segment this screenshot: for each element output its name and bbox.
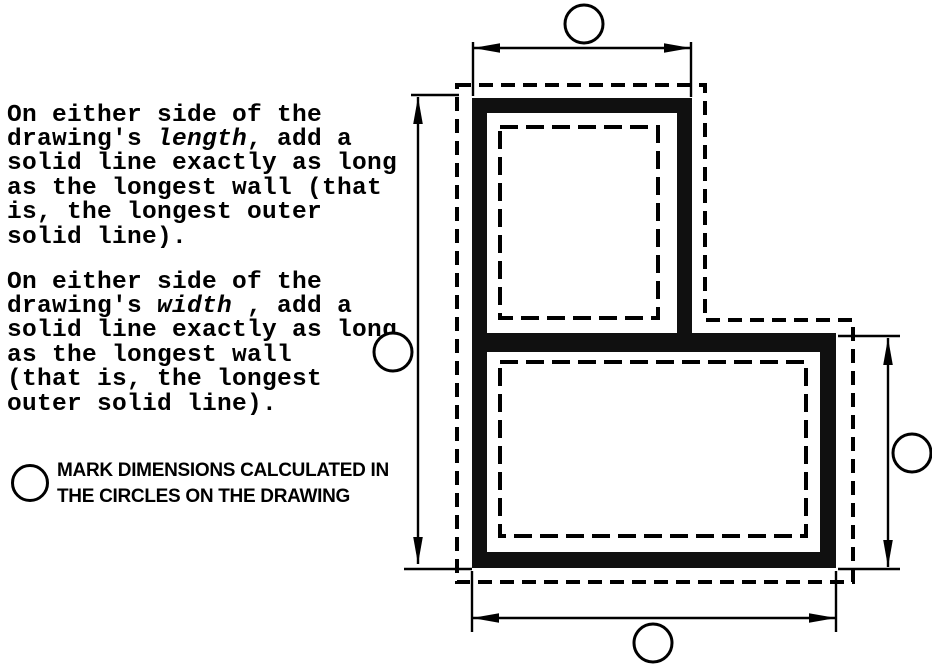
upper-room-inner-dashed: [500, 127, 658, 318]
left-dimension-arrow-top: [413, 97, 423, 124]
right-dimension-arrow-bottom: [883, 540, 893, 567]
bottom-dimension-arrow-right: [809, 613, 836, 623]
left-dimension: [404, 95, 472, 569]
bottom-dimension-circle: [634, 624, 672, 662]
bottom-dimension-arrow-left: [472, 613, 499, 623]
left-dimension-arrow-bottom: [413, 537, 423, 564]
top-dimension-arrow-left: [473, 43, 500, 53]
top-dimension-circle: [565, 5, 603, 43]
floor-plan-walls: [472, 98, 836, 568]
right-dimension-arrow-top: [883, 338, 893, 365]
worksheet-page: On either side of the drawing's length, …: [0, 0, 932, 667]
floor-plan-diagram: [0, 0, 932, 667]
right-dimension: [838, 336, 900, 569]
lower-room-inner-dashed: [500, 362, 806, 536]
top-dimension: [473, 42, 691, 97]
left-dimension-circle: [374, 333, 412, 371]
top-dimension-arrow-right: [664, 43, 691, 53]
right-dimension-circle: [893, 434, 931, 472]
